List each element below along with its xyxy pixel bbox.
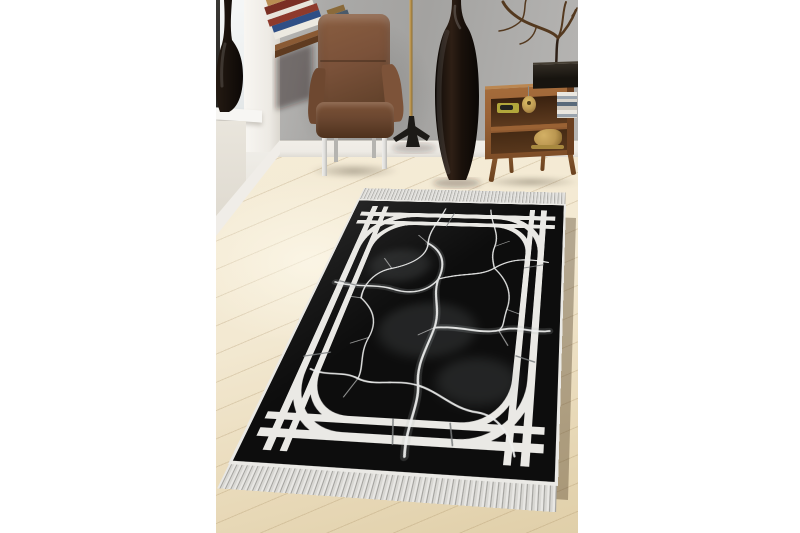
tall-floor-vase [433, 0, 481, 188]
product-photo [0, 0, 800, 533]
armchair [308, 10, 402, 172]
branch-decor [499, 0, 577, 66]
chair-seat-cushion [316, 102, 394, 138]
lamp-pole [410, 0, 413, 122]
tray [497, 103, 519, 113]
window-vase [216, 0, 243, 112]
tray-items [500, 105, 513, 110]
sideboard-books [557, 92, 577, 118]
medallion-hole [527, 101, 531, 105]
chair-seam [320, 60, 386, 62]
figurine-base [531, 145, 564, 149]
media-box [533, 61, 578, 89]
gold-medallion [522, 96, 536, 113]
